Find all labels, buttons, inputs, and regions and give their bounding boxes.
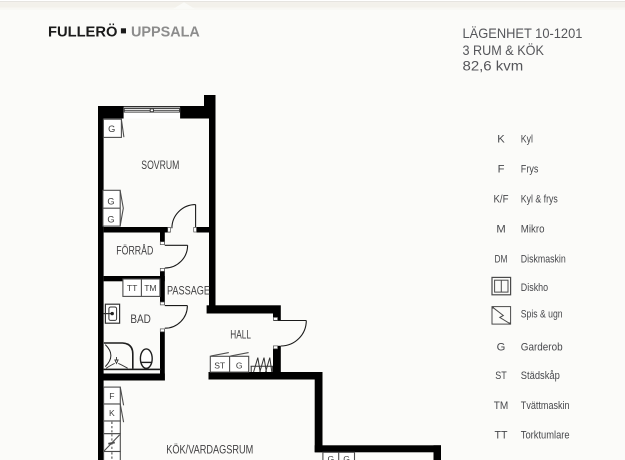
svg-text:G: G: [236, 361, 243, 371]
svg-text:PASSAGE: PASSAGE: [167, 284, 210, 298]
svg-text:K: K: [109, 408, 115, 418]
svg-text:FULLERÖ: FULLERÖ: [48, 23, 118, 40]
svg-text:G: G: [107, 214, 114, 224]
svg-text:DM: DM: [495, 254, 508, 266]
svg-text:Diskmaskin: Diskmaskin: [521, 254, 566, 266]
svg-text:TM: TM: [494, 400, 509, 412]
svg-text:LÄGENHET 10-1201: LÄGENHET 10-1201: [463, 25, 583, 41]
svg-text:ST: ST: [214, 361, 226, 371]
svg-text:Spis & ugn: Spis & ugn: [521, 308, 563, 320]
svg-text:Mikro: Mikro: [521, 224, 545, 236]
svg-text:M: M: [496, 224, 505, 236]
svg-text:K/F: K/F: [494, 194, 509, 206]
svg-text:Städskåp: Städskåp: [521, 370, 560, 382]
svg-text:UPPSALA: UPPSALA: [131, 23, 200, 40]
svg-text:ST: ST: [495, 370, 507, 382]
svg-text:Tvättmaskin: Tvättmaskin: [521, 400, 570, 412]
svg-text:Torktumlare: Torktumlare: [521, 430, 570, 442]
svg-text:SOVRUM: SOVRUM: [141, 158, 179, 172]
svg-text:FÖRRÅD: FÖRRÅD: [116, 242, 153, 257]
svg-text:Frys: Frys: [521, 164, 539, 176]
svg-text:TM: TM: [144, 283, 156, 293]
svg-text:BAD: BAD: [130, 312, 151, 326]
svg-text:KÖK/VARDAGSRUM: KÖK/VARDAGSRUM: [166, 443, 253, 457]
svg-text:F: F: [109, 391, 114, 401]
svg-text:G: G: [327, 454, 334, 460]
svg-text:K: K: [497, 134, 505, 146]
svg-text:G: G: [497, 342, 506, 354]
svg-text:HALL: HALL: [230, 328, 251, 342]
svg-text:Garderob: Garderob: [521, 342, 563, 354]
svg-text:Diskho: Diskho: [521, 282, 548, 294]
svg-text:G: G: [107, 196, 114, 206]
svg-text:F: F: [498, 164, 505, 176]
svg-text:Kyl: Kyl: [521, 134, 533, 146]
svg-text:Kyl & frys: Kyl & frys: [521, 194, 558, 206]
svg-text:82,6 kvm: 82,6 kvm: [463, 58, 524, 74]
svg-text:G: G: [343, 454, 350, 460]
svg-text:G: G: [108, 124, 115, 134]
svg-text:TT: TT: [127, 283, 138, 293]
svg-text:TT: TT: [495, 430, 508, 442]
svg-text:3 RUM & KÖK: 3 RUM & KÖK: [463, 41, 545, 58]
